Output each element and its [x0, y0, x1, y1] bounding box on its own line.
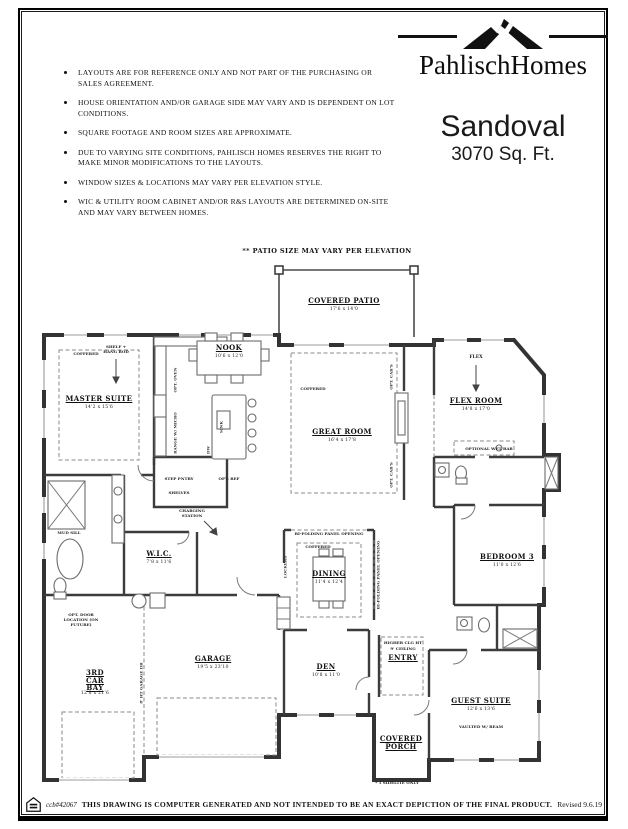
charging-station-note: CHARGING STATION	[173, 509, 211, 519]
disclaimer-text: WIC & UTILITY ROOM CABINET AND/OR R&S LA…	[78, 197, 396, 218]
disclaimer-item: SQUARE FOOTAGE AND ROOM SIZES ARE APPROX…	[64, 128, 396, 139]
patio-note: ** PATIO SIZE MAY VARY PER ELEVATION	[242, 247, 411, 255]
room-dims-den: 10'8 x 11'0	[312, 673, 340, 678]
flex-tag-note: FLEX	[469, 355, 482, 360]
coffered-note-master: COFFERED	[73, 352, 98, 357]
room-dims-third-car-bay: 12'8 x 21'6	[81, 691, 109, 696]
bullet-icon	[64, 71, 67, 74]
bullet-icon	[64, 181, 67, 184]
opt-door-note: OPT. DOOR LOCATION (ON FUTURE)	[57, 613, 105, 627]
floor-plan-drawing	[29, 245, 599, 790]
disclaimer-item: WINDOW SIZES & LOCATIONS MAY VARY PER EL…	[64, 178, 396, 189]
footer: ccb#42067 THIS DRAWING IS COMPUTER GENER…	[26, 797, 602, 812]
room-label-master-suite: MASTER SUITE	[66, 395, 133, 403]
disclaimer-item: HOUSE ORIENTATION AND/OR GARAGE SIDE MAY…	[64, 98, 396, 119]
disclaimer-text: DUE TO VARYING SITE CONDITIONS, PAHLISCH…	[78, 148, 396, 169]
mud-sill-note: MUD SILL	[57, 531, 80, 536]
entry-clg-note2: 9' CEILING	[390, 647, 415, 652]
room-label-covered-patio: COVERED PATIO	[308, 297, 380, 305]
brand-name: PahlischHomes	[398, 50, 608, 81]
disclaimer-text: WINDOW SIZES & LOCATIONS MAY VARY PER EL…	[78, 178, 322, 189]
vaulted-note: VAULTED W/ BEAM	[459, 725, 503, 730]
room-dims-master-suite: 14'2 x 15'6	[85, 405, 113, 410]
disclaimer-text: SQUARE FOOTAGE AND ROOM SIZES ARE APPROX…	[78, 128, 292, 139]
furniture-fixtures	[48, 333, 558, 648]
bullet-icon	[64, 131, 67, 134]
coffered-note-great: COFFERED	[300, 387, 325, 392]
room-label-den: DEN	[316, 663, 335, 671]
annotation-arrows	[113, 359, 479, 535]
plan-title: Sandoval	[398, 110, 608, 144]
step-pantry-note: STEP PNTRY	[164, 477, 193, 482]
equal-housing-icon	[26, 797, 41, 812]
bifold-note-top: BI-FOLDING PANEL OPENING	[295, 532, 364, 537]
room-label-bedroom3: BEDROOM 3	[480, 553, 534, 561]
plan-square-footage: 3070 Sq. Ft.	[398, 144, 608, 166]
room-label-nook: NOOK	[216, 344, 242, 352]
room-label-guest-suite: GUEST SUITE	[451, 697, 511, 705]
logo-rule-right	[549, 35, 608, 38]
room-dims-covered-patio: 17'6 x 14'0	[330, 307, 358, 312]
disclaimer-list: LAYOUTS ARE FOR REFERENCE ONLY AND NOT P…	[64, 68, 396, 227]
bullet-icon	[64, 200, 67, 203]
disclaimer-item: WIC & UTILITY ROOM CABINET AND/OR R&S LA…	[64, 197, 396, 218]
disclaimer-text: LAYOUTS ARE FOR REFERENCE ONLY AND NOT P…	[78, 68, 396, 89]
coffered-note-dining: COFFERED	[305, 545, 330, 550]
room-dims-bedroom3: 11'0 x 12'6	[493, 563, 521, 568]
flyer-page: LAYOUTS ARE FOR REFERENCE ONLY AND NOT P…	[0, 0, 628, 829]
bullet-icon	[64, 101, 67, 104]
room-label-flex-room: FLEX ROOM	[450, 397, 502, 405]
revision-date: Revised 9.6.19	[557, 800, 602, 809]
bifold-note-right: BI-FOLDING PANEL OPENING	[376, 541, 381, 610]
room-dims-flex-room: 14'8 x 17'0	[462, 407, 490, 412]
opt-oven-note: OPT. OVEN	[173, 368, 178, 393]
door-swings	[138, 465, 475, 715]
disclaimer-text: HOUSE ORIENTATION AND/OR GARAGE SIDE MAY…	[78, 98, 396, 119]
room-dims-nook: 10'6 x 12'0	[215, 354, 243, 359]
shelf-rod-note: SHELF + HANG ROD	[100, 345, 132, 355]
room-dims-dining: 11'4 x 12'4	[315, 580, 343, 585]
room-label-garage: GARAGE	[195, 655, 231, 663]
room-dims-great-room: 16'4 x 17'8	[328, 438, 356, 443]
island-sink-note: SINK	[219, 421, 224, 433]
dishwasher-note: DW	[206, 446, 211, 454]
room-label-great-room: GREAT ROOM	[312, 428, 372, 436]
logo-rule-left	[398, 35, 457, 38]
garage-door-height-note: 8' HT GARAGE DR	[139, 662, 144, 703]
sidelite-note: * 1 SIDELITE ONLY	[375, 781, 419, 786]
opt-cabs-note-top: OPT. CAB'S	[389, 364, 394, 390]
room-label-entry: ENTRY	[388, 654, 418, 662]
room-label-dining: DINING	[312, 570, 346, 578]
brand-logo: PahlischHomes	[398, 16, 608, 81]
disclaimer-item: DUE TO VARYING SITE CONDITIONS, PAHLISCH…	[64, 148, 396, 169]
opt-cabs-note-bottom: OPT. CAB'S	[389, 462, 394, 488]
license-number: ccb#42067	[46, 801, 77, 809]
disclaimer-item: LAYOUTS ARE FOR REFERENCE ONLY AND NOT P…	[64, 68, 396, 89]
range-micro-note: RANGE W/ MICRO	[173, 412, 178, 454]
wet-bar-note: OPTIONAL WET BAR	[465, 447, 513, 452]
shelves-note: SHELVES	[168, 491, 189, 496]
room-dims-guest-suite: 12'6 x 13'6	[467, 707, 495, 712]
room-dims-garage: 19'5 x 23'10	[197, 665, 229, 670]
room-label-wic: W.I.C.	[146, 550, 171, 558]
bullet-icon	[64, 151, 67, 154]
lockers-note: LOCKERS	[283, 556, 288, 578]
opt-ref-note: OPT. REF	[219, 477, 240, 482]
footer-disclaimer: THIS DRAWING IS COMPUTER GENERATED AND N…	[77, 800, 557, 809]
floor-plan: ** PATIO SIZE MAY VARY PER ELEVATION COV…	[29, 245, 599, 790]
room-label-third-car-bay: 3RD CAR BAY	[76, 669, 114, 692]
room-dims-wic: 7'8 x 11'6	[146, 560, 171, 565]
room-label-covered-porch: COVERED PORCH	[378, 735, 424, 750]
